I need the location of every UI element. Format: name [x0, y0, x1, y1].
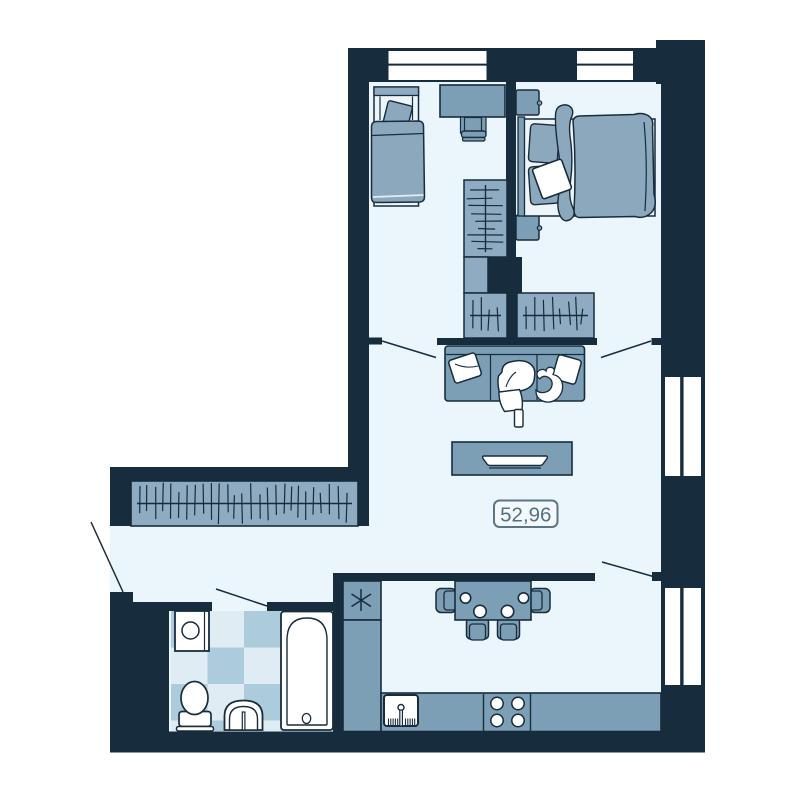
svg-text:52,96: 52,96 [500, 503, 551, 526]
